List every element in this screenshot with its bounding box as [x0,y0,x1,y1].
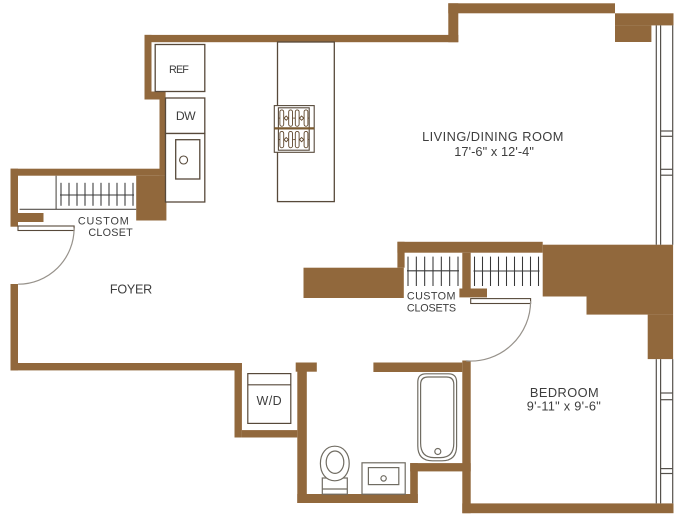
svg-text:CLOSETS: CLOSETS [407,302,456,314]
svg-text:W/D: W/D [257,394,283,408]
svg-text:CUSTOM: CUSTOM [407,290,456,302]
svg-text:REF: REF [169,64,189,76]
svg-text:DW: DW [176,109,196,123]
svg-text:17'-6" x 12'-4": 17'-6" x 12'-4" [454,144,534,159]
svg-text:CLOSET: CLOSET [88,227,133,239]
svg-text:FOYER: FOYER [110,283,152,297]
svg-text:LIVING/DINING ROOM: LIVING/DINING ROOM [422,129,564,144]
svg-text:CUSTOM: CUSTOM [78,216,130,228]
svg-text:9'-11" x 9'-6": 9'-11" x 9'-6" [527,399,601,414]
